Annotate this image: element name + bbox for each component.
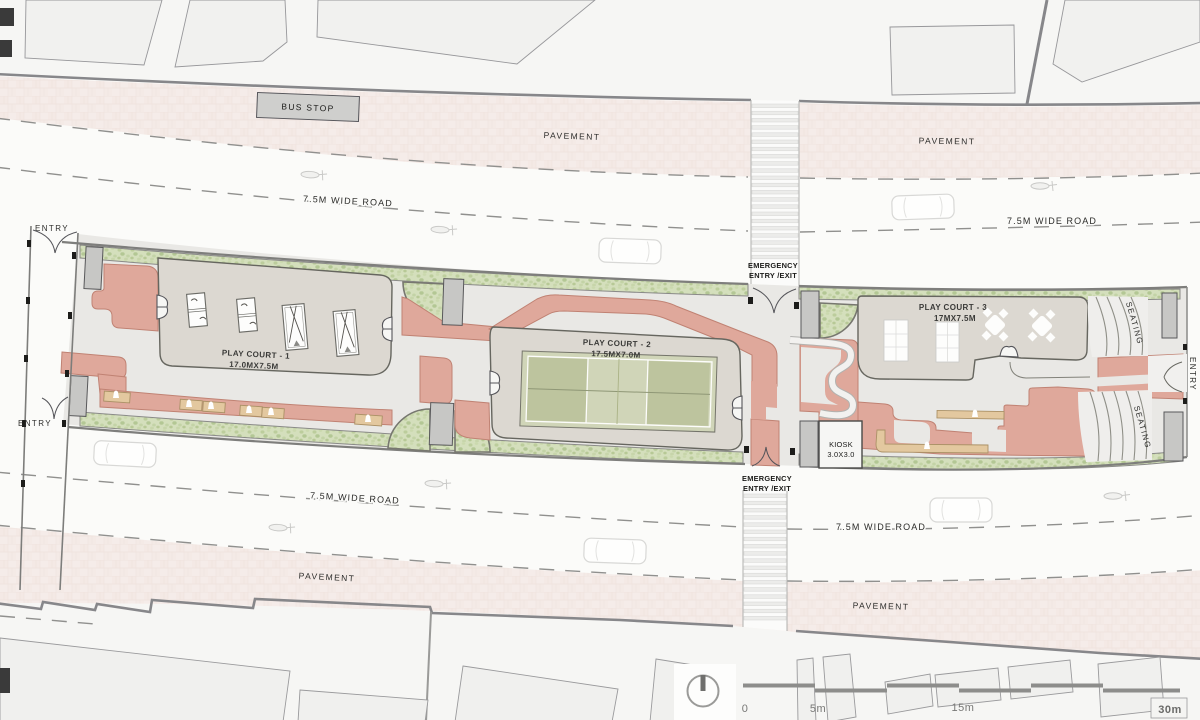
- svg-text:PAVEMENT: PAVEMENT: [853, 600, 910, 611]
- svg-text:ENTRY /EXIT: ENTRY /EXIT: [749, 271, 797, 280]
- svg-text:15m: 15m: [952, 702, 975, 714]
- svg-text:PLAY COURT - 3: PLAY COURT - 3: [919, 303, 987, 312]
- svg-text:PAVEMENT: PAVEMENT: [543, 130, 600, 142]
- svg-text:17MX7.5M: 17MX7.5M: [934, 314, 976, 323]
- svg-text:PAVEMENT: PAVEMENT: [919, 136, 976, 147]
- svg-text:ENTRY /EXIT: ENTRY /EXIT: [743, 484, 791, 493]
- svg-text:0: 0: [742, 703, 749, 715]
- svg-text:30m: 30m: [1158, 704, 1182, 716]
- svg-text:5m: 5m: [810, 703, 826, 715]
- svg-text:17.5MX7.0M: 17.5MX7.0M: [591, 349, 641, 360]
- svg-text:EMERGENCY: EMERGENCY: [748, 261, 798, 270]
- svg-text:7.5M WIDE ROAD: 7.5M WIDE ROAD: [1007, 216, 1097, 226]
- svg-text:7.5M WIDE ROAD: 7.5M WIDE ROAD: [836, 522, 926, 532]
- svg-text:3.0X3.0: 3.0X3.0: [827, 450, 854, 459]
- svg-text:EMERGENCY: EMERGENCY: [742, 474, 792, 483]
- svg-text:KIOSK: KIOSK: [829, 440, 853, 449]
- svg-text:ENTRY: ENTRY: [1188, 357, 1197, 391]
- svg-text:ENTRY: ENTRY: [35, 224, 69, 233]
- svg-text:ENTRY: ENTRY: [18, 419, 52, 428]
- svg-text:BUS STOP: BUS STOP: [281, 101, 335, 113]
